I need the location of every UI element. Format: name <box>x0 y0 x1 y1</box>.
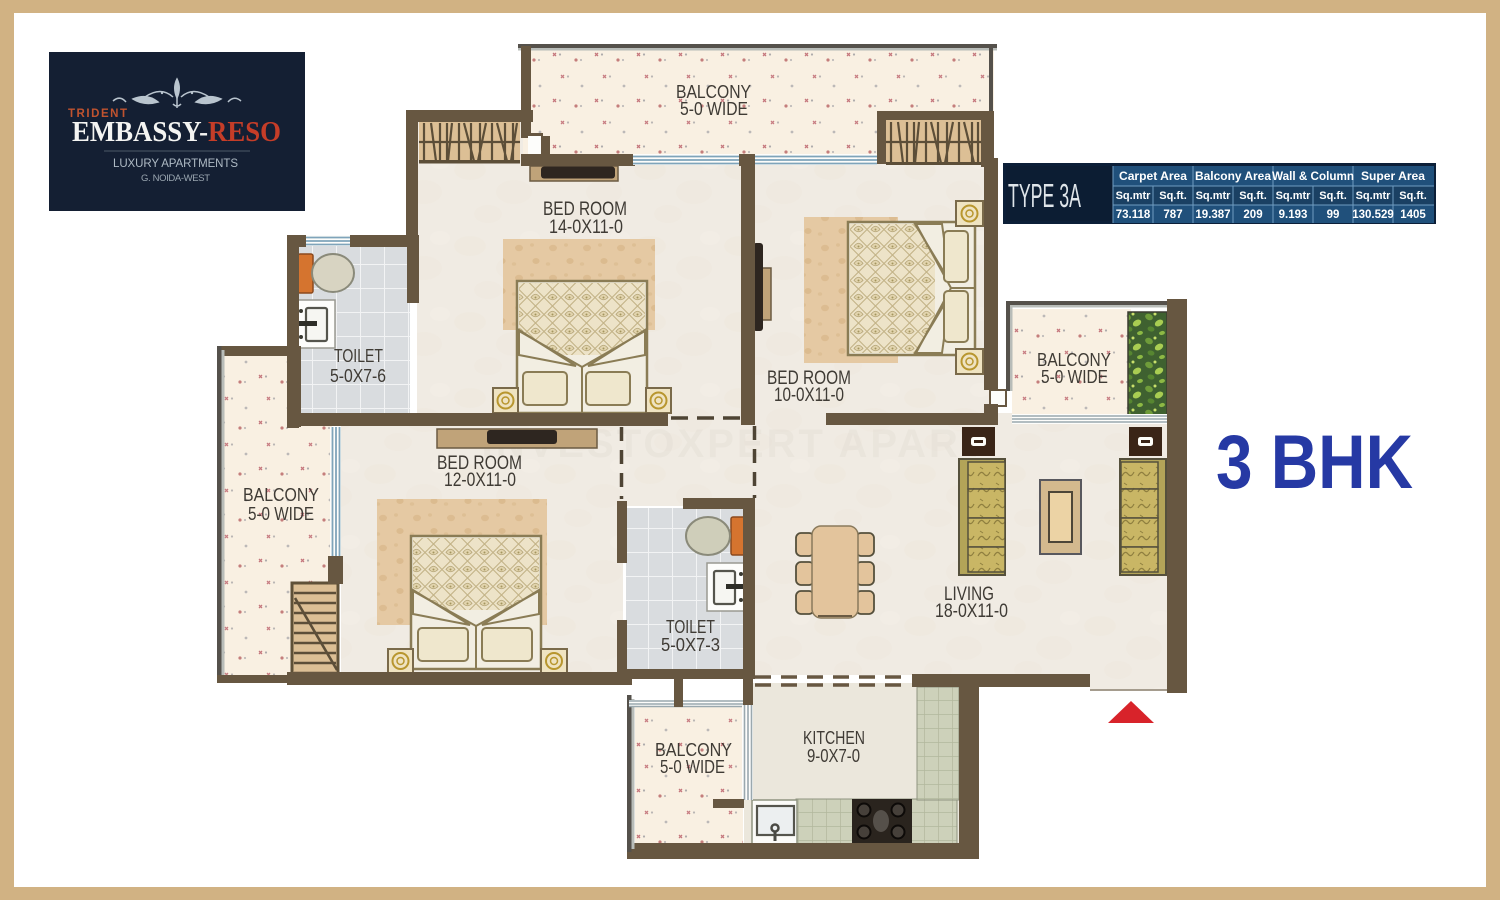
svg-text:787: 787 <box>1163 209 1182 221</box>
svg-text:Sq.mtr: Sq.mtr <box>1116 190 1152 202</box>
svg-text:5-0 WIDE: 5-0 WIDE <box>248 504 314 524</box>
svg-text:Carpet Area: Carpet Area <box>1119 169 1187 183</box>
svg-text:3 BHK: 3 BHK <box>1216 420 1413 505</box>
svg-text:73.118: 73.118 <box>1116 209 1151 221</box>
svg-text:5-0 WIDE: 5-0 WIDE <box>660 757 725 777</box>
svg-text:9.193: 9.193 <box>1279 209 1308 221</box>
svg-text:5-0 WIDE: 5-0 WIDE <box>680 99 748 119</box>
svg-text:Wall & Column: Wall & Column <box>1272 169 1354 183</box>
svg-text:10-0X11-0: 10-0X11-0 <box>774 384 844 406</box>
svg-text:Balcony Area: Balcony Area <box>1195 169 1271 183</box>
svg-text:5-0 WIDE: 5-0 WIDE <box>1041 367 1108 387</box>
svg-text:Sq.ft.: Sq.ft. <box>1159 190 1187 202</box>
svg-text:14-0X11-0: 14-0X11-0 <box>549 216 623 238</box>
svg-text:5-0X7-6: 5-0X7-6 <box>330 366 386 386</box>
svg-text:130.529: 130.529 <box>1352 209 1394 221</box>
svg-text:Sq.ft.: Sq.ft. <box>1319 190 1347 202</box>
svg-text:BALCONY: BALCONY <box>243 485 319 505</box>
svg-text:Sq.ft.: Sq.ft. <box>1239 190 1267 202</box>
svg-text:19.387: 19.387 <box>1195 209 1230 221</box>
svg-text:EMBASSY-RESO: EMBASSY-RESO <box>72 116 281 148</box>
svg-text:KITCHEN: KITCHEN <box>803 728 865 748</box>
svg-text:1405: 1405 <box>1400 209 1426 221</box>
svg-text:12-0X11-0: 12-0X11-0 <box>444 469 516 491</box>
svg-text:Sq.ft.: Sq.ft. <box>1399 190 1427 202</box>
svg-text:Sq.mtr: Sq.mtr <box>1356 190 1392 202</box>
svg-text:5-0X7-3: 5-0X7-3 <box>661 635 720 655</box>
svg-text:TYPE 3A: TYPE 3A <box>1008 177 1081 214</box>
svg-text:209: 209 <box>1243 209 1262 221</box>
svg-text:TOILET: TOILET <box>334 346 383 366</box>
svg-text:9-0X7-0: 9-0X7-0 <box>807 746 860 766</box>
svg-text:Sq.mtr: Sq.mtr <box>1196 190 1232 202</box>
svg-text:99: 99 <box>1327 209 1340 221</box>
svg-text:G. NOIDA-WEST: G. NOIDA-WEST <box>141 173 210 184</box>
svg-text:TOILET: TOILET <box>666 617 715 637</box>
svg-text:18-0X11-0: 18-0X11-0 <box>935 600 1008 622</box>
svg-text:LUXURY APARTMENTS: LUXURY APARTMENTS <box>113 158 238 170</box>
svg-text:Super Area: Super Area <box>1361 169 1425 183</box>
svg-text:Sq.mtr: Sq.mtr <box>1276 190 1312 202</box>
